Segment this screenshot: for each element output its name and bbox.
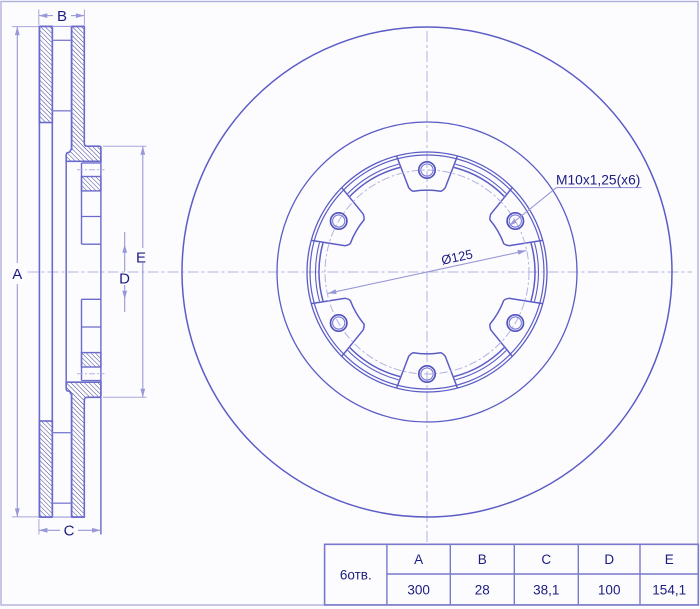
svg-text:154,1: 154,1 bbox=[652, 583, 686, 598]
svg-text:6отв.: 6отв. bbox=[340, 568, 372, 583]
svg-text:B: B bbox=[478, 552, 487, 567]
svg-text:E: E bbox=[136, 249, 146, 266]
svg-text:C: C bbox=[541, 552, 551, 567]
svg-text:M10x1,25(x6): M10x1,25(x6) bbox=[556, 173, 640, 188]
svg-text:D: D bbox=[604, 552, 614, 567]
svg-text:28: 28 bbox=[475, 583, 490, 598]
svg-text:D: D bbox=[119, 270, 130, 287]
svg-text:A: A bbox=[414, 552, 423, 567]
svg-text:E: E bbox=[665, 552, 674, 567]
svg-text:B: B bbox=[57, 8, 67, 25]
svg-text:38,1: 38,1 bbox=[533, 583, 559, 598]
svg-text:C: C bbox=[64, 522, 75, 539]
svg-text:A: A bbox=[12, 266, 22, 283]
svg-text:100: 100 bbox=[598, 583, 621, 598]
svg-text:300: 300 bbox=[407, 583, 430, 598]
